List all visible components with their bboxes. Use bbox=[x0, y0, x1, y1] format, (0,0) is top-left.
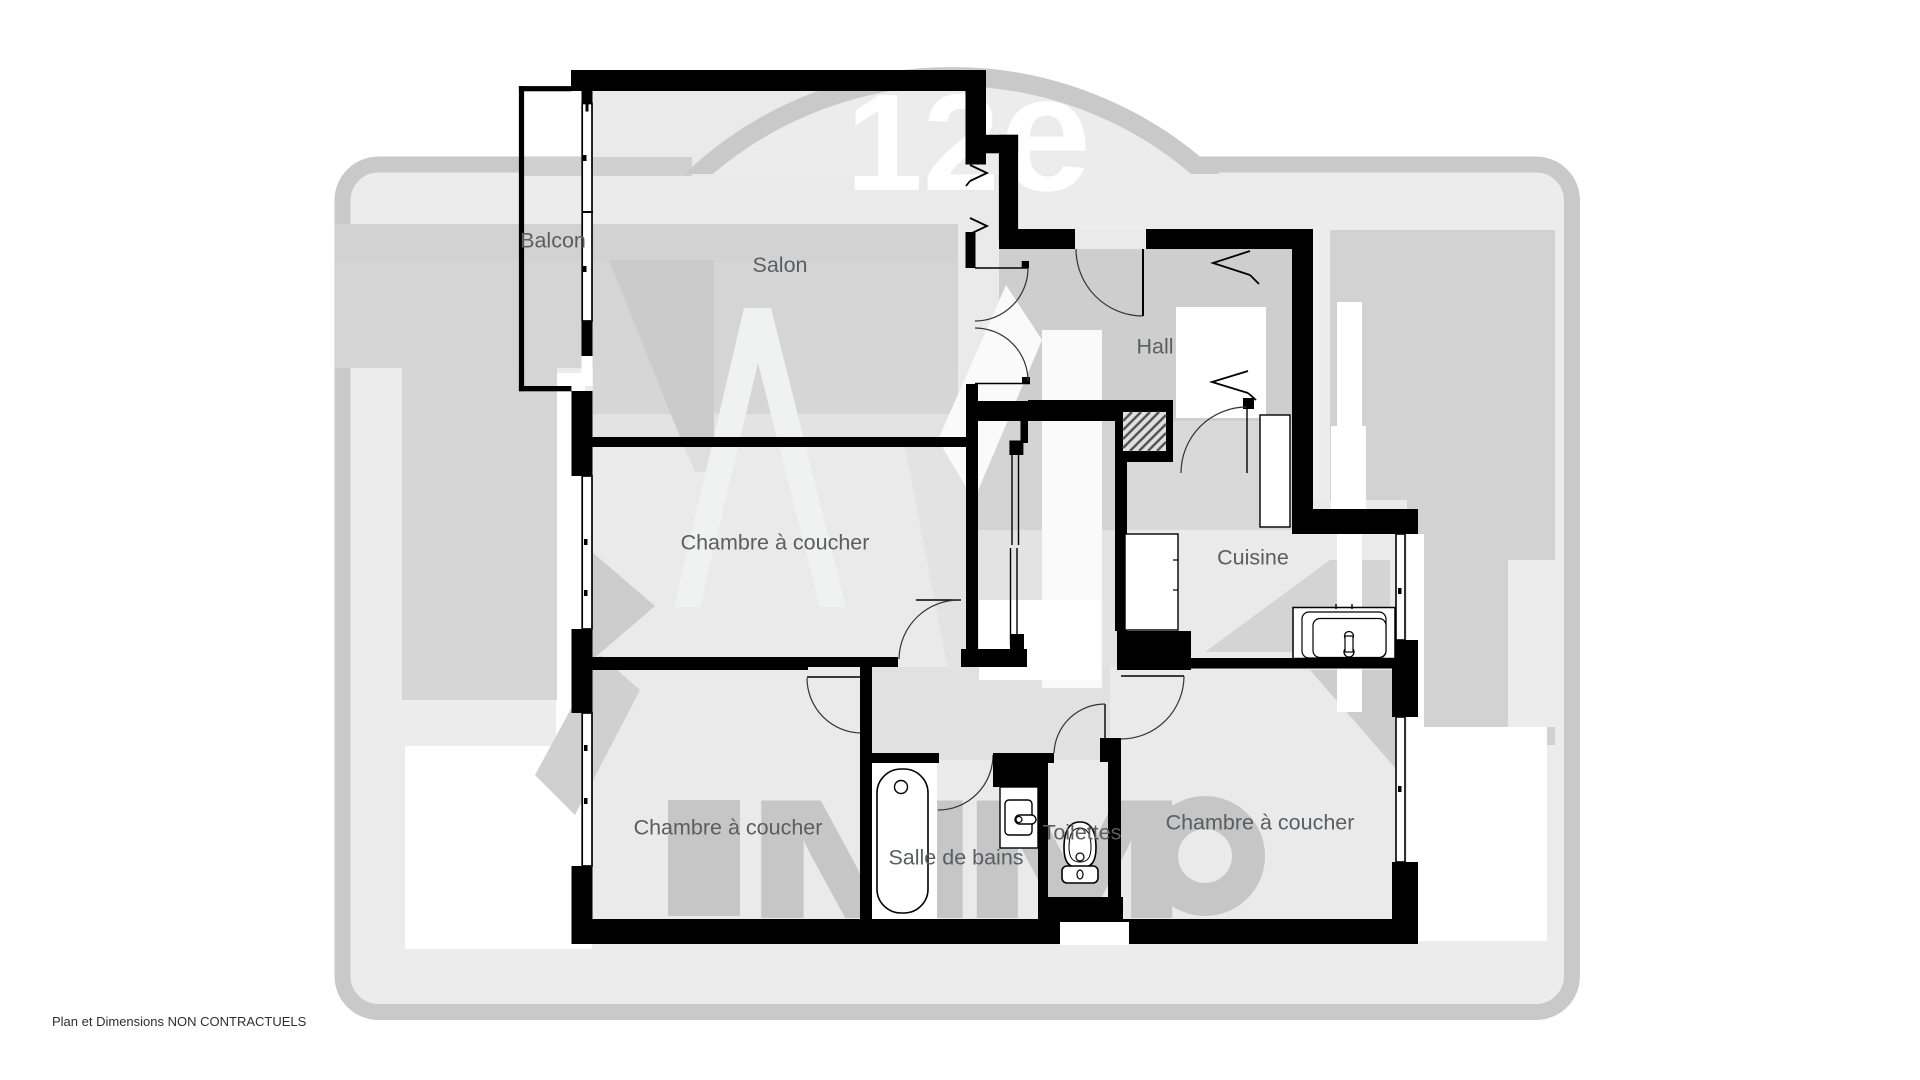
svg-text:Hall: Hall bbox=[1136, 335, 1173, 359]
svg-text:Salle de bains: Salle de bains bbox=[888, 846, 1023, 870]
svg-text:Salon: Salon bbox=[753, 253, 808, 277]
svg-text:Plan et Dimensions NON CONTRAC: Plan et Dimensions NON CONTRACTUELS bbox=[52, 1014, 307, 1029]
svg-text:Chambre à coucher: Chambre à coucher bbox=[1166, 811, 1355, 835]
svg-text:Toilettes: Toilettes bbox=[1043, 821, 1122, 845]
svg-text:Cuisine: Cuisine bbox=[1217, 546, 1289, 570]
svg-text:Chambre à coucher: Chambre à coucher bbox=[681, 531, 870, 555]
svg-text:Balcon: Balcon bbox=[520, 229, 586, 253]
svg-text:Chambre à coucher: Chambre à coucher bbox=[634, 816, 823, 840]
